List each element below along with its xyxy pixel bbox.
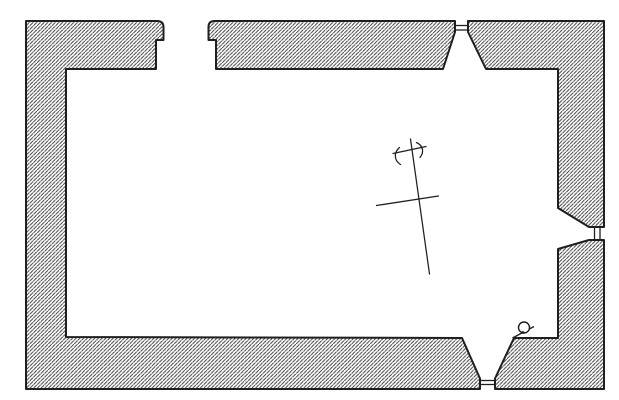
incised-cross-mark xyxy=(377,139,439,274)
floor-plan-page xyxy=(0,0,619,400)
cross-right-arc xyxy=(417,143,423,158)
cross-staff-line xyxy=(411,139,430,274)
cross-left-arc xyxy=(395,148,400,165)
stoup-circle xyxy=(519,322,530,333)
wall-segment-northeast xyxy=(468,21,604,227)
stoup-detail-group xyxy=(513,322,535,338)
cross-lower-bar xyxy=(377,196,439,206)
wall-segment-west-and-southwest xyxy=(26,21,480,389)
stoup-dot xyxy=(522,331,525,334)
wall-segment-southeast xyxy=(495,240,604,389)
masonry-walls-layer xyxy=(26,21,604,389)
chapel-floor-plan-drawing xyxy=(0,0,619,400)
wall-segment-north-middle xyxy=(209,21,456,69)
cross-upper-bar xyxy=(393,147,426,154)
